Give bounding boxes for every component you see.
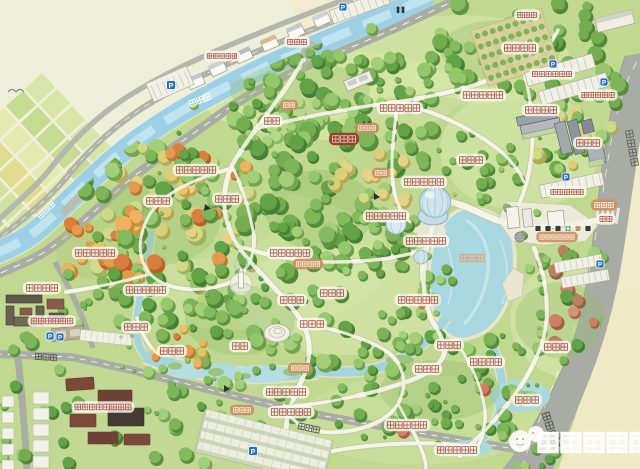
svg-text:P: P (58, 335, 62, 342)
svg-text:P: P (551, 62, 555, 69)
svg-text:P: P (564, 175, 568, 182)
svg-text:P: P (341, 5, 345, 12)
svg-text:P: P (169, 83, 174, 90)
svg-text:P: P (598, 262, 602, 269)
svg-text:P: P (251, 449, 256, 456)
svg-text:P: P (48, 334, 52, 341)
svg-text:P: P (602, 80, 606, 87)
